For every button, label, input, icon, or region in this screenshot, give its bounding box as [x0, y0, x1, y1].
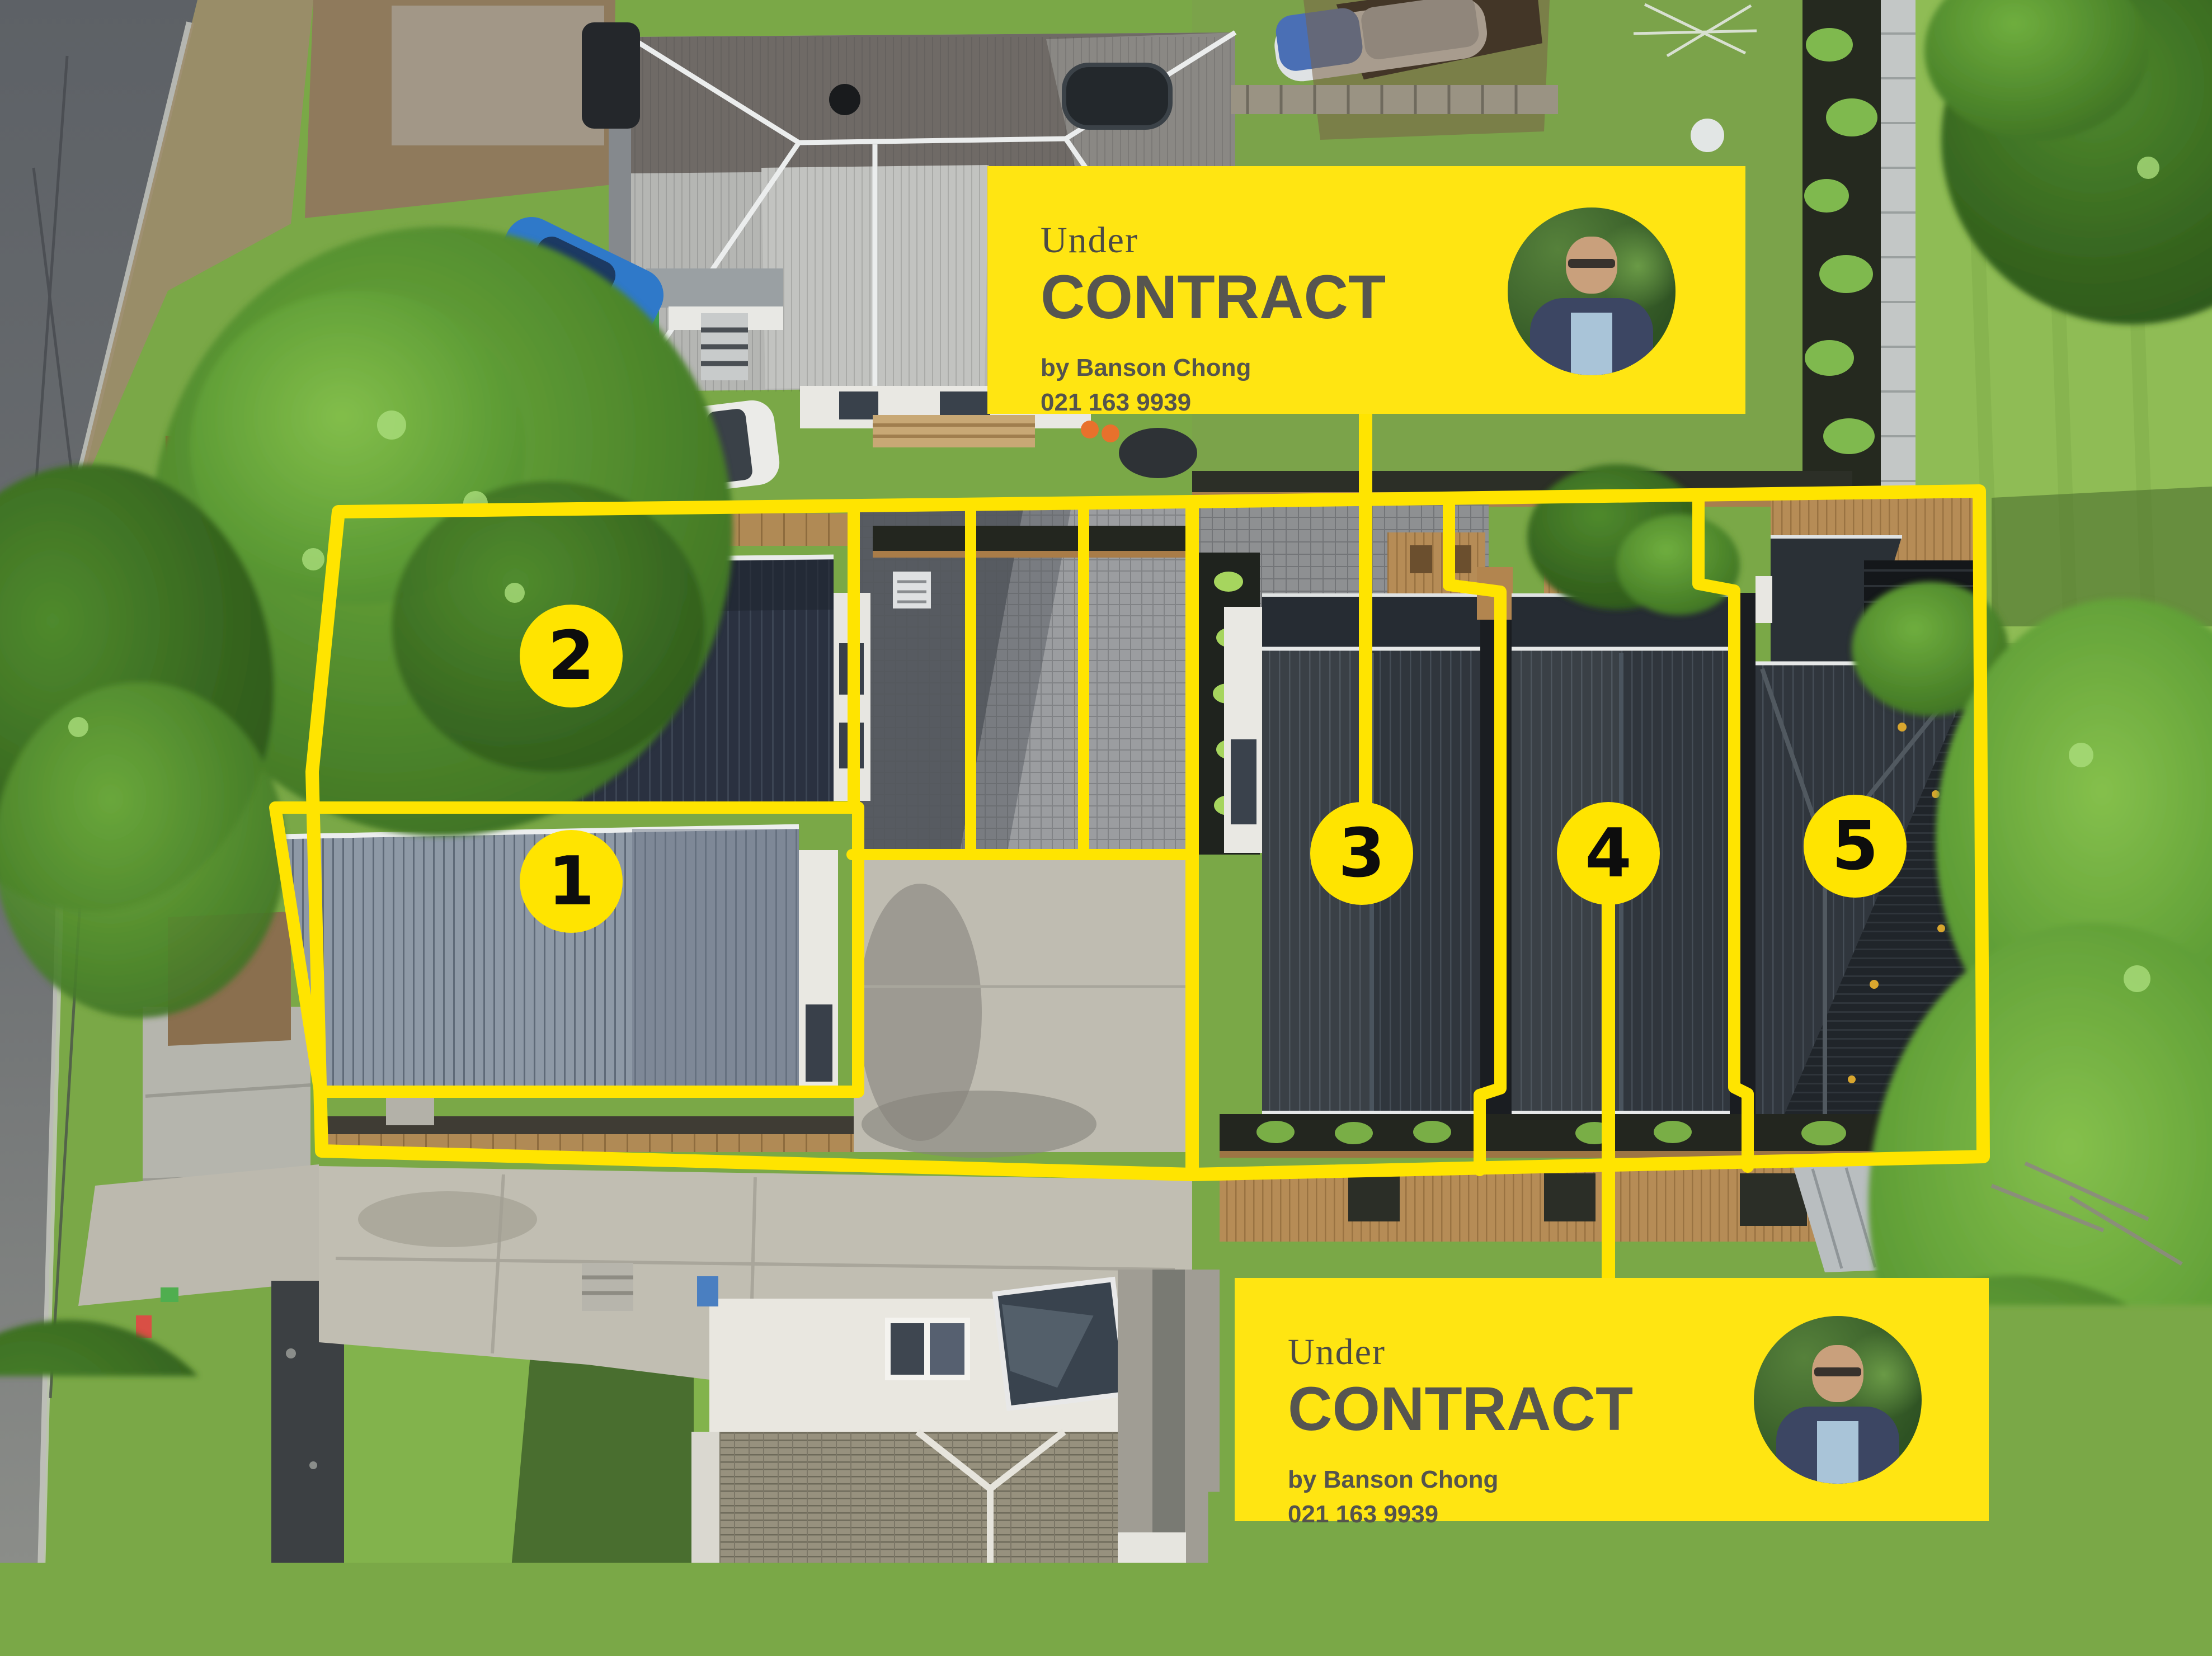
big-skylight — [995, 1280, 1127, 1408]
lot-badge-5: 5 — [1804, 795, 1907, 898]
dark-suv — [582, 22, 640, 129]
under-contract-banner-bottom: Under CONTRACT by Banson Chong 021 163 9… — [1235, 1278, 1989, 1521]
porch — [646, 268, 783, 308]
boat-dirt-patch — [1303, 0, 1550, 140]
satellite-dish — [1691, 119, 1724, 152]
green-bin-2 — [161, 1287, 178, 1302]
old-concrete-pad — [392, 6, 604, 145]
aerial-photo-stage: 1 2 3 4 5 Under CONTRACT by Banson Chong… — [0, 0, 2212, 1656]
lot-badge-2-label: 2 — [548, 617, 595, 695]
timber-edge — [873, 551, 1192, 558]
road-cone — [1102, 424, 1119, 442]
road-cone — [1081, 421, 1099, 438]
old-picket-fence — [1231, 85, 1558, 114]
agent-photo — [1754, 1316, 1922, 1484]
agent-glasses — [1814, 1367, 1861, 1376]
lot-badge-4-label: 4 — [1585, 815, 1632, 893]
house-window — [885, 1318, 970, 1380]
lot-badge-1-label: 1 — [548, 843, 595, 921]
lot-badge-1: 1 — [520, 830, 623, 933]
house-steps — [582, 1263, 633, 1311]
roof-vent — [829, 84, 860, 115]
agent-shirt — [1817, 1421, 1858, 1484]
lot-badge-3: 3 — [1310, 802, 1413, 905]
agent-shirt — [1571, 313, 1612, 375]
lot-badge-4: 4 — [1557, 802, 1660, 905]
wet-patch2 — [862, 1091, 1096, 1158]
trampoline — [1064, 65, 1170, 128]
blue-bin-2 — [697, 1276, 718, 1306]
lumber-pile — [873, 415, 1035, 447]
lot-badge-2: 2 — [520, 605, 623, 707]
red-bin — [136, 1315, 152, 1338]
banner-top-phone: 021 163 9939 — [1041, 389, 1745, 417]
lot-badge-5-label: 5 — [1832, 808, 1879, 885]
porch-bit — [1118, 1532, 1186, 1573]
porch-steps — [701, 313, 748, 380]
agent-glasses — [1568, 259, 1615, 268]
agent-photo — [1508, 207, 1676, 375]
apron-stain — [358, 1191, 537, 1247]
house1-stoop — [386, 1094, 434, 1125]
garden-bed — [1802, 0, 1881, 492]
banner-bottom-phone: 021 163 9939 — [1288, 1501, 1989, 1528]
bikes — [1119, 428, 1197, 478]
lot-badge-3-label: 3 — [1338, 815, 1385, 893]
indicative-boundary-watermark: INDICATIVE BOUNDARY LINE — [632, 1569, 1594, 1626]
courtyard-garden — [873, 526, 1192, 553]
under-contract-banner-top: Under CONTRACT by Banson Chong 021 163 9… — [987, 166, 1745, 414]
